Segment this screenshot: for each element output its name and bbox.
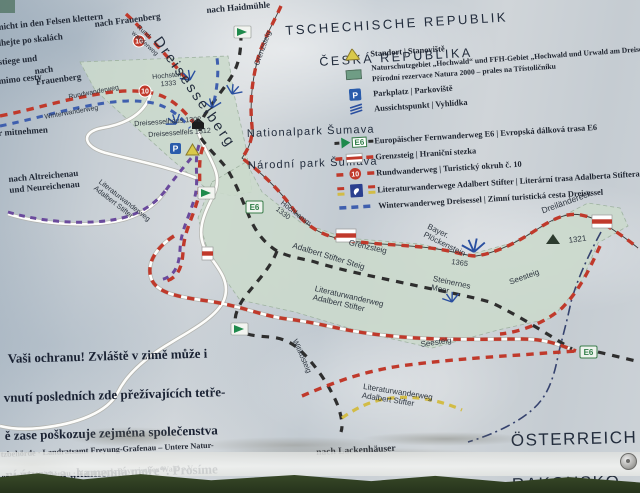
parking-icon: P [170,143,181,154]
parking-icon: P [337,87,374,101]
viewpoint-icon [338,102,375,116]
legend-label: Parkplatz | Parkoviště [373,83,453,98]
legend-label: Grenzsteig | Hraniční stezka [375,146,476,161]
legend-label: Standort | Stanoviště [370,44,445,58]
peak-label-hochstein: Hochstein 1333 [152,71,184,90]
e6-label: E6 [354,138,365,148]
board-bottom-edge [0,452,640,476]
standort-triangle-icon [334,47,371,61]
round-trail-icon: 10 [336,166,377,182]
parking-letter: P [352,90,359,100]
border-trail-icon [335,151,376,165]
mounting-bolt-icon [620,453,637,470]
e6-label: E6 [250,203,260,212]
corner-vegetation [0,0,15,13]
legend-label: Aussichtspunkt | Vyhlídka [374,97,468,113]
paragraph-line: Vaši ochranu! Zvláště v zimě může i [3,343,225,368]
literature-trail-icon [337,182,378,198]
e6-trail-icon: E6 [334,135,375,150]
austria-de: ÖSTERREICH [511,427,638,452]
photo-of-trail-map-sign: 10 10 E6 E6 P TSCHECHISCHE REPUBLIK ČESK… [0,0,640,493]
winter-trail-icon [338,199,379,213]
e6-label: E6 [584,348,594,357]
parking-letter: P [173,144,179,154]
nature-reserve-swatch-icon [335,68,372,80]
route-10-number: 10 [351,171,359,178]
country-title-de: TSCHECHISCHE REPUBLIK [285,10,509,39]
route-10-number: 10 [141,89,149,96]
paragraph-line: vnutí posledních zde přežívajících tetře… [4,382,226,407]
